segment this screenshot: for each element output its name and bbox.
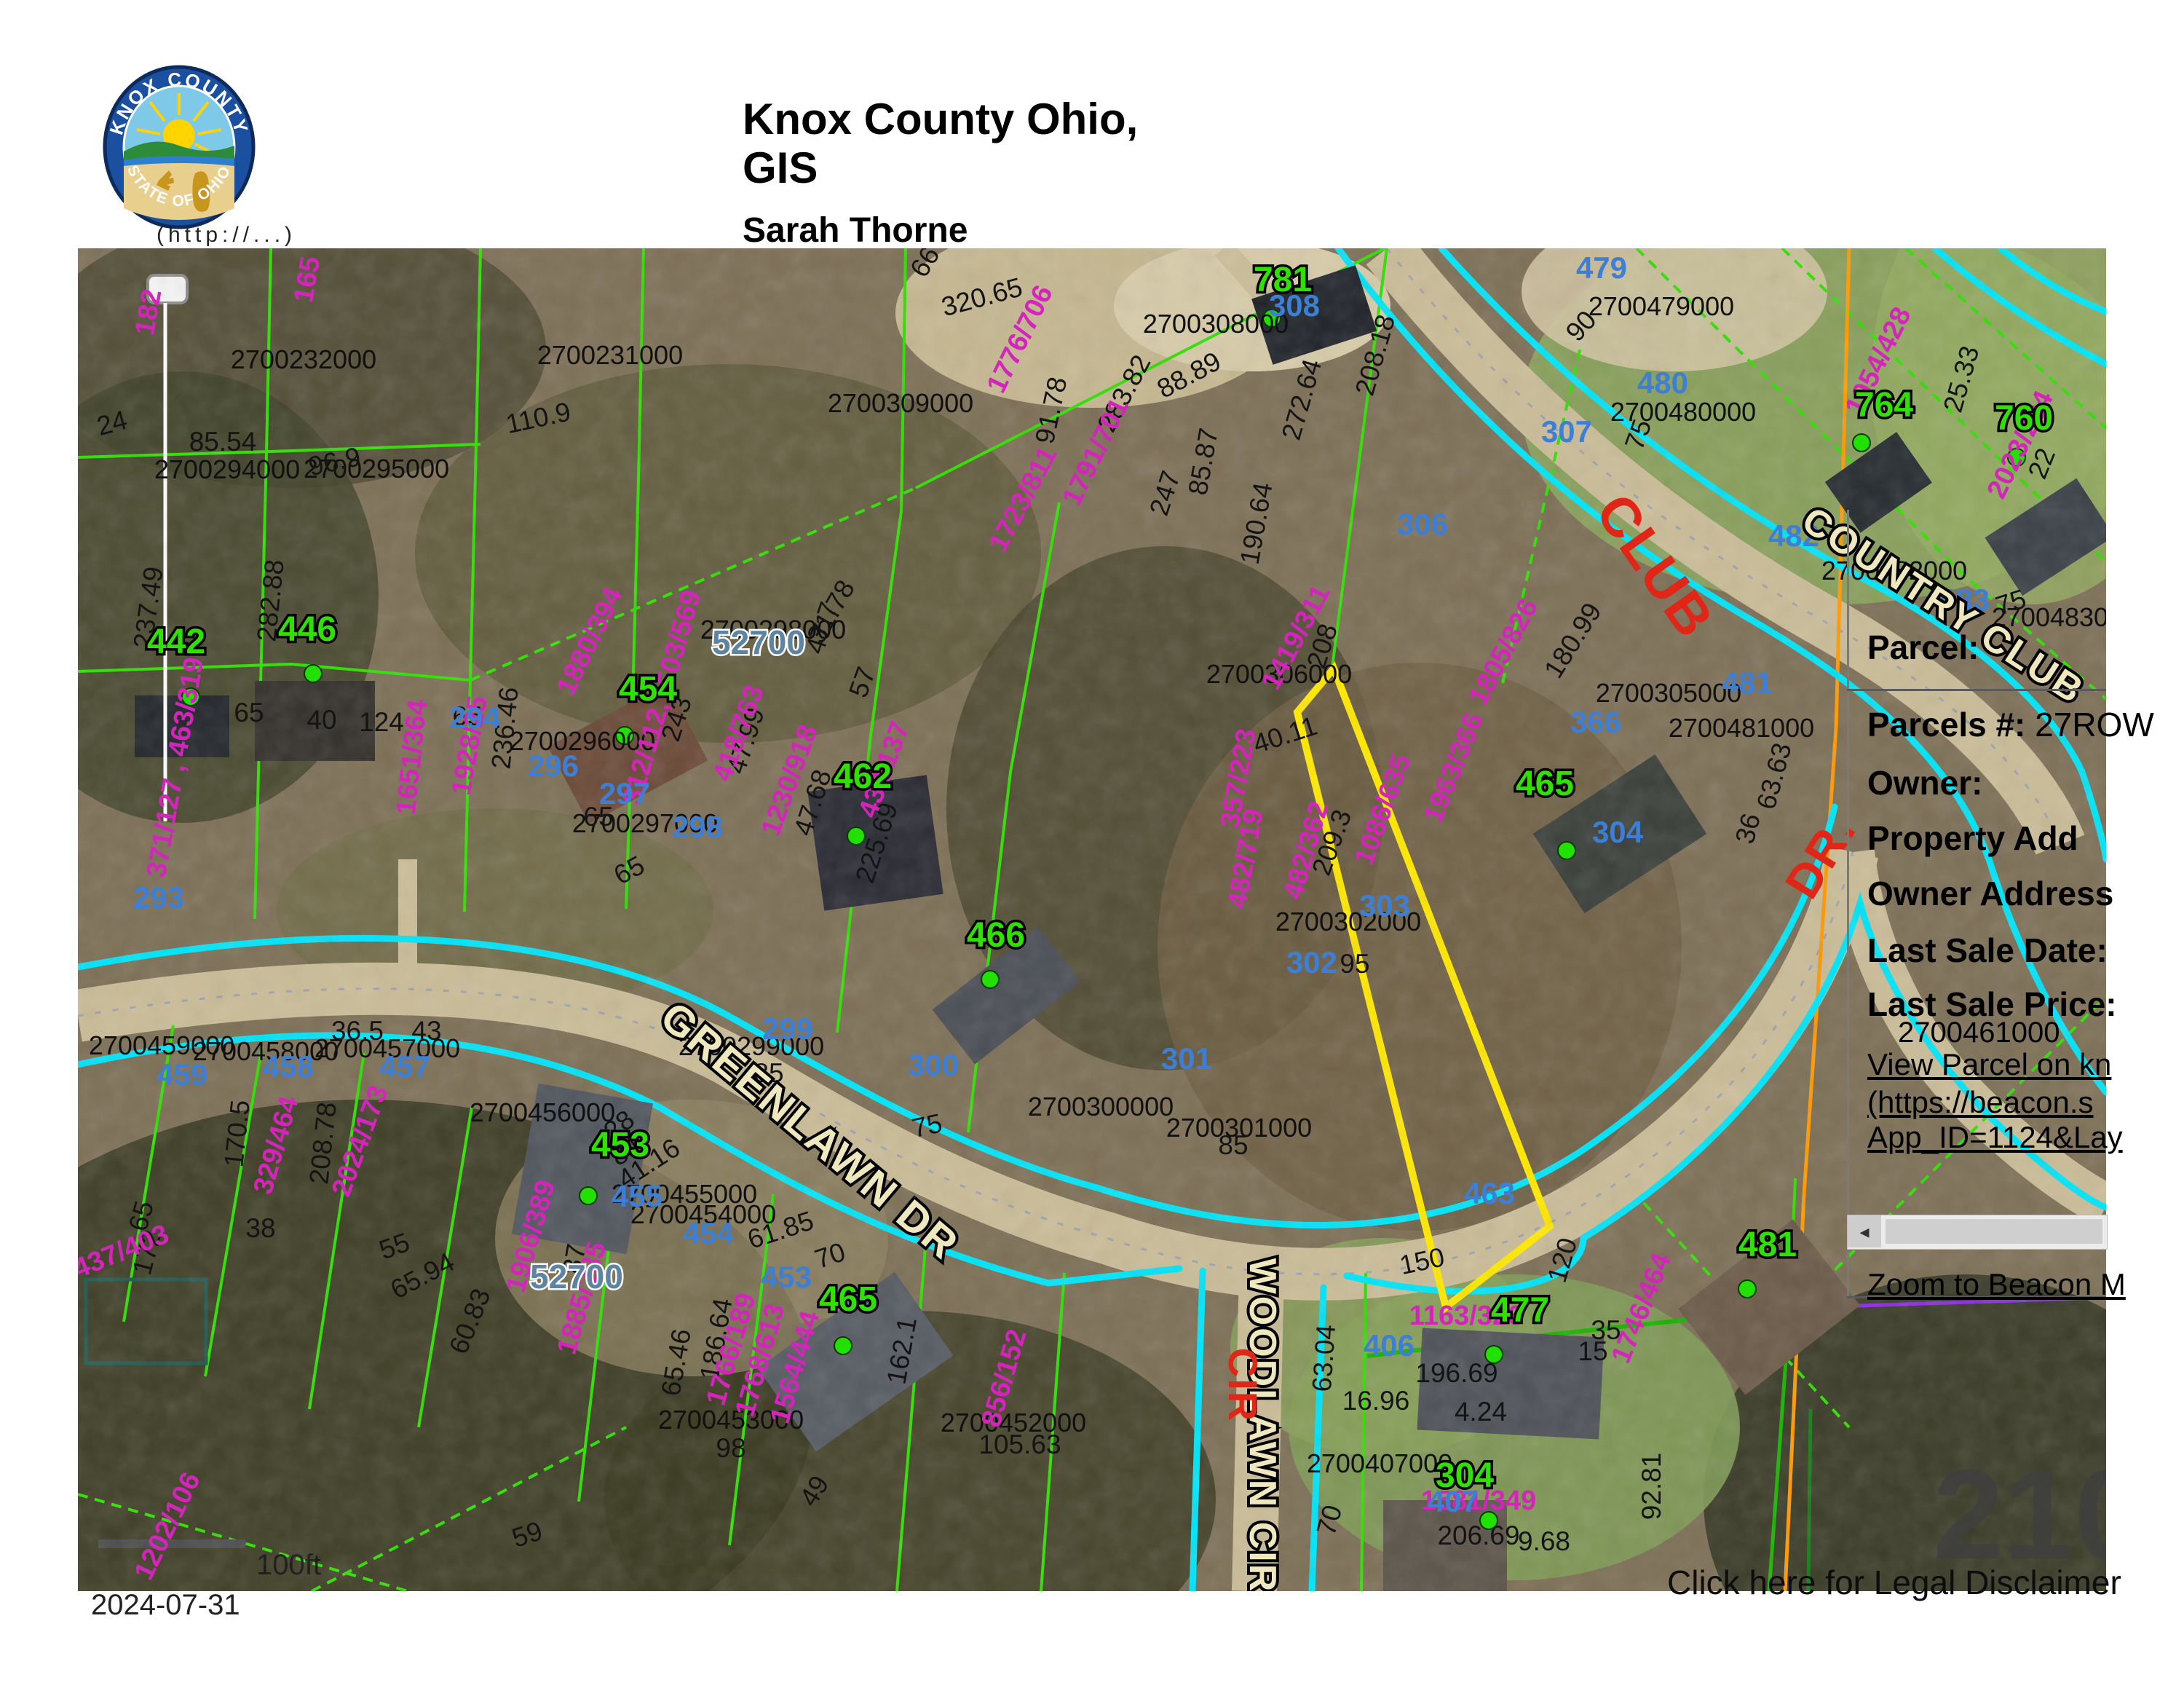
map-label-dim: 38 [245,1213,275,1243]
panel-horizontal-scrollbar[interactable]: ◂ [1847,1215,2108,1250]
map-label-house: 446 [278,610,336,649]
clipped-url-text: (http://...) [157,223,296,248]
owner-label: Owner: [1867,763,1982,802]
map-label-dim: 124 [359,707,404,737]
map-label-zone: 52700 [530,1258,623,1295]
map-label-lot: 481 [1722,666,1773,700]
beacon-url-link[interactable]: (https://beacon.s [1867,1085,2094,1120]
map-label-lot: 300 [908,1048,959,1082]
map-label-dim: 63.04 [1307,1324,1341,1393]
map-label-lot: 366 [1570,705,1621,739]
owner-address-label: Owner Address [1867,874,2113,913]
map-label-lot: 455 [612,1179,662,1213]
map-label-lot: 406 [1364,1328,1415,1362]
parcels-number-row: Parcels #: 27ROW [1867,705,2154,744]
view-parcel-link[interactable]: View Parcel on kn [1867,1047,2111,1082]
page-header: KNOX COUNTY STATE OF OHIO Knox County Oh… [0,0,2184,248]
map-label-dim: 105.63 [978,1429,1061,1459]
map-label-dim: 15 [1578,1336,1607,1366]
map-label-lot: 294 [449,701,501,735]
map-label-house: 764 [1855,386,1913,425]
map-label-dim: 40 [306,705,336,735]
map-label-parcel: 2700407000 [1307,1448,1452,1478]
map-label-house: 304 [1436,1456,1494,1495]
last-sale-date-label: Last Sale Date: [1867,931,2108,970]
map-label-lot: 302 [1286,945,1337,979]
map-label-dim: 92.81 [1637,1453,1666,1521]
map-label-lot: 298 [672,810,723,844]
map-label-lot: 303 [1359,888,1410,923]
map-label-lot: 480 [1637,366,1688,400]
user-name: Sarah Thorne [743,211,1138,251]
parcels-value: 27ROW [2035,706,2154,744]
map-label-lot: 304 [1592,815,1644,849]
map-label-lot: 463 [1464,1176,1515,1210]
map-label-lot: 454 [683,1216,735,1250]
map-label-house: 781 [1254,261,1312,299]
map-label-lot: 296 [528,749,579,783]
map-label-dim: 4.24 [1455,1397,1507,1427]
map-label-lot: 479 [1576,251,1627,285]
house-point-marker [981,971,999,988]
house-point-marker [304,665,322,682]
map-label-lot: 306 [1397,507,1448,541]
scrollbar-thumb[interactable] [1886,1219,2102,1244]
map-label-house: 760 [1995,399,2053,438]
map-label-house: 481 [1738,1226,1797,1264]
map-label-dim: 196.69 [1415,1358,1497,1388]
house-point-marker [1738,1280,1756,1298]
map-label-dim: 98 [716,1433,745,1463]
map-label-dim: 43 [411,1016,441,1046]
map-label-lot: 293 [133,880,184,915]
scrollbar-left-button[interactable]: ◂ [1848,1215,1881,1247]
map-label-parcel: 2700232000 [231,344,376,374]
map-label-lot: 299 [762,1011,813,1046]
map-label-house: 465 [819,1280,877,1319]
map-label-house: 454 [619,670,677,709]
map-label-parcel: 2700231000 [537,340,683,370]
map-label-dim: 85.54 [189,427,257,457]
map-label-street: WOODLAWN CIR [1241,1258,1283,1591]
legal-disclaimer-link[interactable]: Click here for Legal Disclaimer [1667,1563,2121,1602]
map-label-dim: 206.69 [1437,1521,1519,1550]
map-label-lot: 297 [599,776,650,811]
map-label-dim: 65 [234,698,264,727]
map-canvas[interactable]: 100ft 2700308000270030900027002310002700… [78,248,2106,1591]
house-point-marker [1558,842,1575,859]
map-label-parcel: 2700294000 [154,454,300,484]
map-label-parcel: 2700300000 [1028,1092,1174,1121]
map-label-house: 477 [1491,1291,1549,1330]
map-label-dim: 85 [1218,1130,1248,1160]
map-label-parcel: 2700305000 [1596,678,1741,708]
panel-parcel-id: 2700461000 [1898,1017,2060,1049]
app-title-line2: GIS [743,143,1138,192]
property-address-label: Property Add [1867,819,2078,858]
map-label-zone: 52700 [712,623,805,661]
map-label-dim: 16.96 [1342,1386,1410,1416]
map-label-house: 442 [147,623,205,661]
knox-county-seal-icon: KNOX COUNTY STATE OF OHIO [102,64,256,230]
map-label-dim: 9.68 [1518,1526,1570,1556]
house-point-marker [834,1337,852,1354]
map-label-lot: 459 [157,1057,207,1092]
gis-print-page: KNOX COUNTY STATE OF OHIO Knox County Oh… [0,0,2184,1688]
map-label-house: 466 [967,916,1025,955]
map-label-lot: 457 [379,1049,430,1084]
map-label-parcel: 2700309000 [828,388,973,418]
map-label-dim: 36.5 [331,1016,384,1046]
map-label-parcel: 2700456000 [470,1097,615,1127]
map-label-parcel: 2700308000 [1143,309,1289,339]
app-title-line1: Knox County Ohio, [743,95,1138,143]
map-label-lot: 307 [1541,414,1592,449]
scrollbar-left-arrow-icon: ◂ [1859,1220,1869,1243]
parcels-label: Parcels #: [1867,706,2025,744]
map-label-street: CIR [1220,1348,1266,1422]
map-label-lot: 301 [1161,1041,1212,1076]
map-label-lot: 458 [263,1049,314,1084]
house-point-marker [579,1187,597,1204]
house-point-marker [1853,434,1870,451]
map-label-dim: 75 [909,1108,945,1143]
map-label-house: 462 [834,757,892,796]
map-label-dim: 95 [1340,949,1369,979]
map-label-parcel: 2700479000 [1588,291,1734,321]
appid-url-link[interactable]: App_ID=1124&Lay [1867,1120,2123,1155]
print-date: 2024-07-31 [91,1589,240,1622]
zoom-to-beacon-link[interactable]: Zoom to Beacon M [1867,1267,2126,1302]
map-label-parcel: 2700459000 [89,1030,234,1060]
parcel-label: Parcel: [1867,628,1979,667]
map-label-house: 453 [591,1126,649,1164]
map-label-house: 465 [1516,765,1574,803]
map-label-parcel: 2700481000 [1669,713,1814,743]
map-label-lot: 453 [761,1260,812,1294]
